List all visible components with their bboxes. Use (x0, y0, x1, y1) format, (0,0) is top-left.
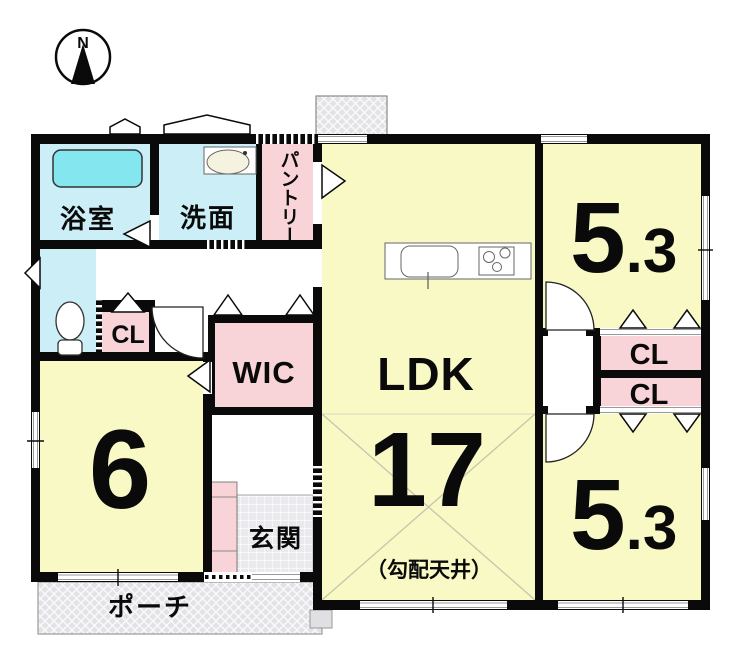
pantry-label: パントリー (278, 150, 300, 245)
kitchen-sink (401, 246, 458, 277)
bedroom-se-size-main: 5 (570, 459, 626, 571)
door-opening (313, 162, 322, 224)
bedroom-se-size-decimal: .3 (626, 494, 678, 563)
floor-plan: 浴室 洗面 パントリー CL WIC 6 玄関 ポーチ LDK 17 （勾配天井… (0, 0, 740, 664)
door-opening (548, 406, 586, 414)
compass-icon: N (56, 30, 110, 84)
shoe-cabinet (210, 482, 237, 573)
exterior-step (310, 610, 332, 628)
entrance-door (252, 572, 300, 582)
exterior-bay-hatch (316, 96, 387, 138)
washbasin (204, 147, 256, 174)
sliding-door (204, 240, 248, 249)
bathtub (53, 150, 142, 187)
bedroom-ne-size-decimal: .3 (626, 217, 678, 286)
door-opening (150, 215, 159, 240)
closet-hall-label: CL (111, 321, 144, 349)
toilet (56, 302, 84, 355)
ldk-sloped-ceiling-note: （勾配天井） (366, 558, 492, 582)
sliding-door (313, 465, 322, 517)
washroom-label: 洗面 (180, 203, 236, 233)
louver-strip (255, 134, 317, 144)
entrance-label: 玄関 (249, 524, 303, 553)
accordion-door (96, 300, 102, 352)
wic-label: WIC (232, 355, 295, 390)
ldk-label: LDK (377, 348, 475, 400)
ldk-size-label: 17 (368, 411, 486, 529)
bedroom-west-size-label: 6 (89, 407, 151, 532)
closet-ne-label: CL (630, 339, 669, 371)
bathroom-label: 浴室 (60, 204, 116, 234)
wall-opening (313, 249, 322, 287)
bedroom-ne-size-main: 5 (570, 182, 626, 294)
closet-se-label: CL (630, 379, 669, 411)
porch-label: ポーチ (108, 592, 192, 622)
compass-north-label: N (77, 35, 89, 52)
floor-plan-canvas: 浴室 洗面 パントリー CL WIC 6 玄関 ポーチ LDK 17 （勾配天井… (0, 0, 740, 664)
